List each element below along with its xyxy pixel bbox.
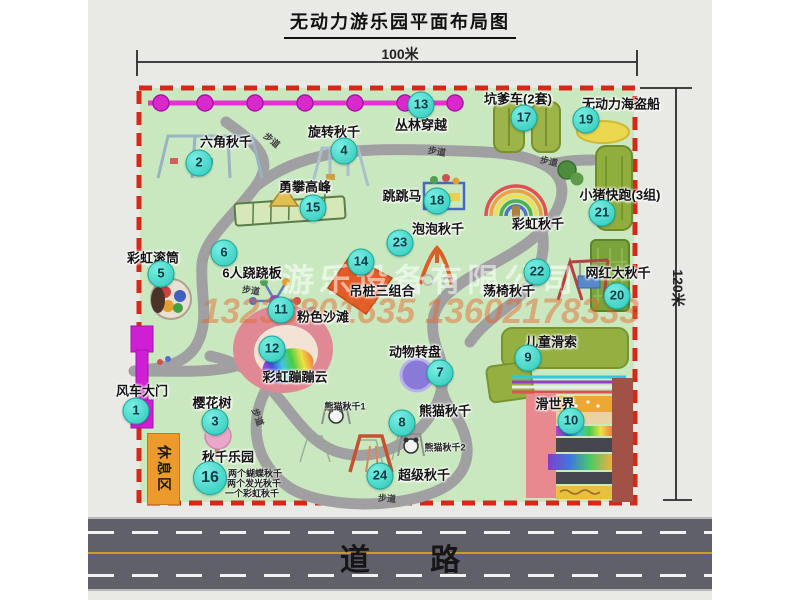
attraction-badge-18: 18 xyxy=(424,188,451,215)
attraction-badge-21: 21 xyxy=(589,200,616,227)
attraction-label-6: 6人跷跷板 xyxy=(222,263,281,282)
attraction-badge-10: 10 xyxy=(558,408,585,435)
attraction-label-24: 超级秋千 xyxy=(398,465,450,484)
walkway-label: 步道 xyxy=(249,406,267,427)
attraction-label-20: 网红大秋千 xyxy=(585,263,650,282)
attraction-badge-6: 6 xyxy=(211,240,238,267)
attraction-badge-3: 3 xyxy=(202,409,229,436)
dimension-height-label: 120米 xyxy=(668,258,688,318)
attraction-label-1: 风车大门 xyxy=(116,381,168,400)
attraction-badge-8: 8 xyxy=(389,410,416,437)
walkway-label: 步道 xyxy=(241,282,261,297)
attraction-badge-1: 1 xyxy=(123,398,150,425)
walkway-label: 步道 xyxy=(378,491,397,505)
attraction-badge-15: 15 xyxy=(300,195,327,222)
attraction-badge-13: 13 xyxy=(408,92,435,119)
attraction-label-4: 旋转秋千 xyxy=(308,122,360,141)
screenshot-canvas: 无动力游乐园平面布局图 100米 120米 xyxy=(0,0,800,600)
attraction-badge-5: 5 xyxy=(148,261,175,288)
attraction-label-12: 彩虹蹦蹦云 xyxy=(262,367,327,386)
attraction-label-18: 跳跳马 xyxy=(382,186,421,205)
attraction-badge-2: 2 xyxy=(186,150,213,177)
attraction-badge-7: 7 xyxy=(427,360,454,387)
page-title: 无动力游乐园平面布局图 xyxy=(284,8,516,39)
attraction-label-2: 六角秋千 xyxy=(200,132,252,151)
sub-label: 一个彩虹秋千 xyxy=(225,487,279,500)
dimension-width-label: 100米 xyxy=(330,44,470,64)
attraction-badge-24: 24 xyxy=(367,463,394,490)
attraction-label-11: 粉色沙滩 xyxy=(297,307,349,326)
walkway-label: 步道 xyxy=(539,153,559,169)
walkway-label: 步道 xyxy=(261,129,283,151)
attraction-label-14: 吊桩三组合 xyxy=(349,281,414,300)
attraction-badge-23: 23 xyxy=(387,230,414,257)
sub-label: 熊猫秋千1 xyxy=(324,400,365,413)
attraction-badge-22: 22 xyxy=(524,259,551,286)
attraction-badge-4: 4 xyxy=(331,138,358,165)
attraction-label-22: 荡椅秋千 xyxy=(483,281,535,300)
page-title-wrap: 无动力游乐园平面布局图 xyxy=(88,8,712,39)
attraction-badge-11: 11 xyxy=(268,297,295,324)
walkway-label: 步道 xyxy=(427,143,447,159)
attraction-label-rainbow-swing: 彩虹秋千 xyxy=(512,214,564,233)
attraction-badge-12: 12 xyxy=(259,336,286,363)
attraction-label-8: 熊猫秋千 xyxy=(419,401,471,420)
attraction-label-21: 小猪快跑(3组) xyxy=(580,185,661,204)
attraction-badge-9: 9 xyxy=(515,345,542,372)
attraction-badge-14: 14 xyxy=(348,249,375,276)
attraction-label-7: 动物转盘 xyxy=(389,342,441,361)
attraction-label-23: 泡泡秋千 xyxy=(412,219,464,238)
attraction-label-15: 勇攀高峰 xyxy=(279,177,331,196)
attraction-badge-20: 20 xyxy=(604,283,631,310)
sub-label: 熊猫秋千2 xyxy=(424,441,465,454)
attraction-badge-17: 17 xyxy=(511,105,538,132)
attraction-badge-19: 19 xyxy=(573,107,600,134)
attraction-badge-16: 16 xyxy=(193,461,227,495)
